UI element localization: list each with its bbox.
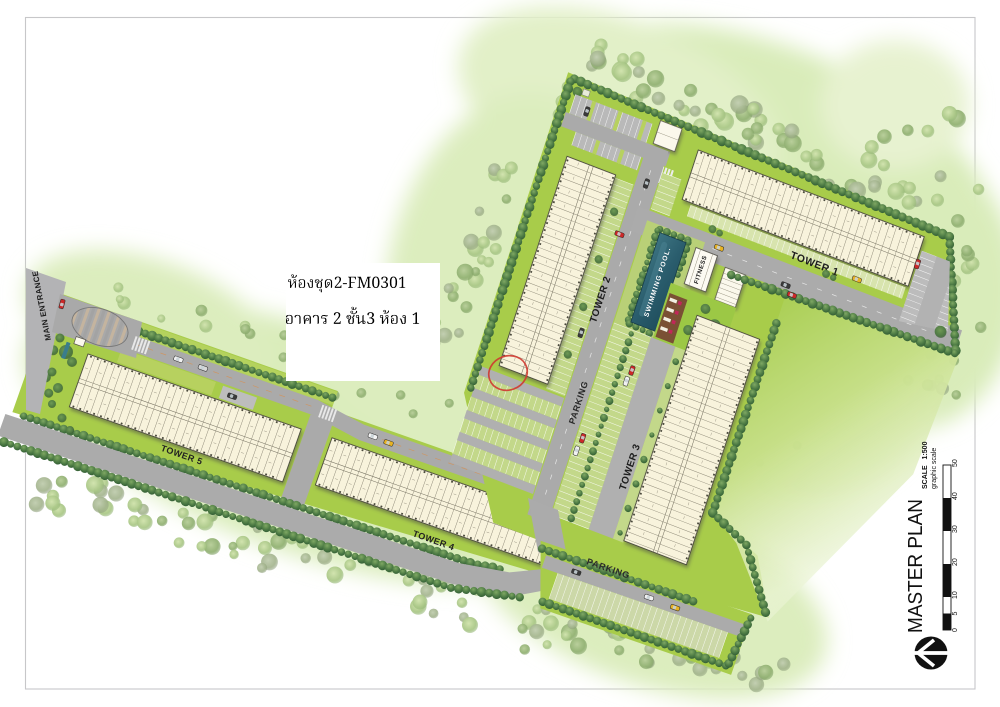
svg-text:50: 50 (952, 459, 959, 467)
svg-text:30: 30 (952, 525, 959, 533)
svg-text:10: 10 (952, 591, 959, 599)
svg-text:40: 40 (952, 492, 959, 500)
svg-text:20: 20 (952, 558, 959, 566)
svg-text:5: 5 (952, 612, 959, 616)
svg-text:0: 0 (952, 628, 959, 632)
svg-text:graphic scale: graphic scale (931, 448, 938, 489)
svg-text:SCALE 1:500: SCALE 1:500 (922, 441, 929, 489)
svg-text:MASTER PLAN: MASTER PLAN (904, 499, 927, 633)
